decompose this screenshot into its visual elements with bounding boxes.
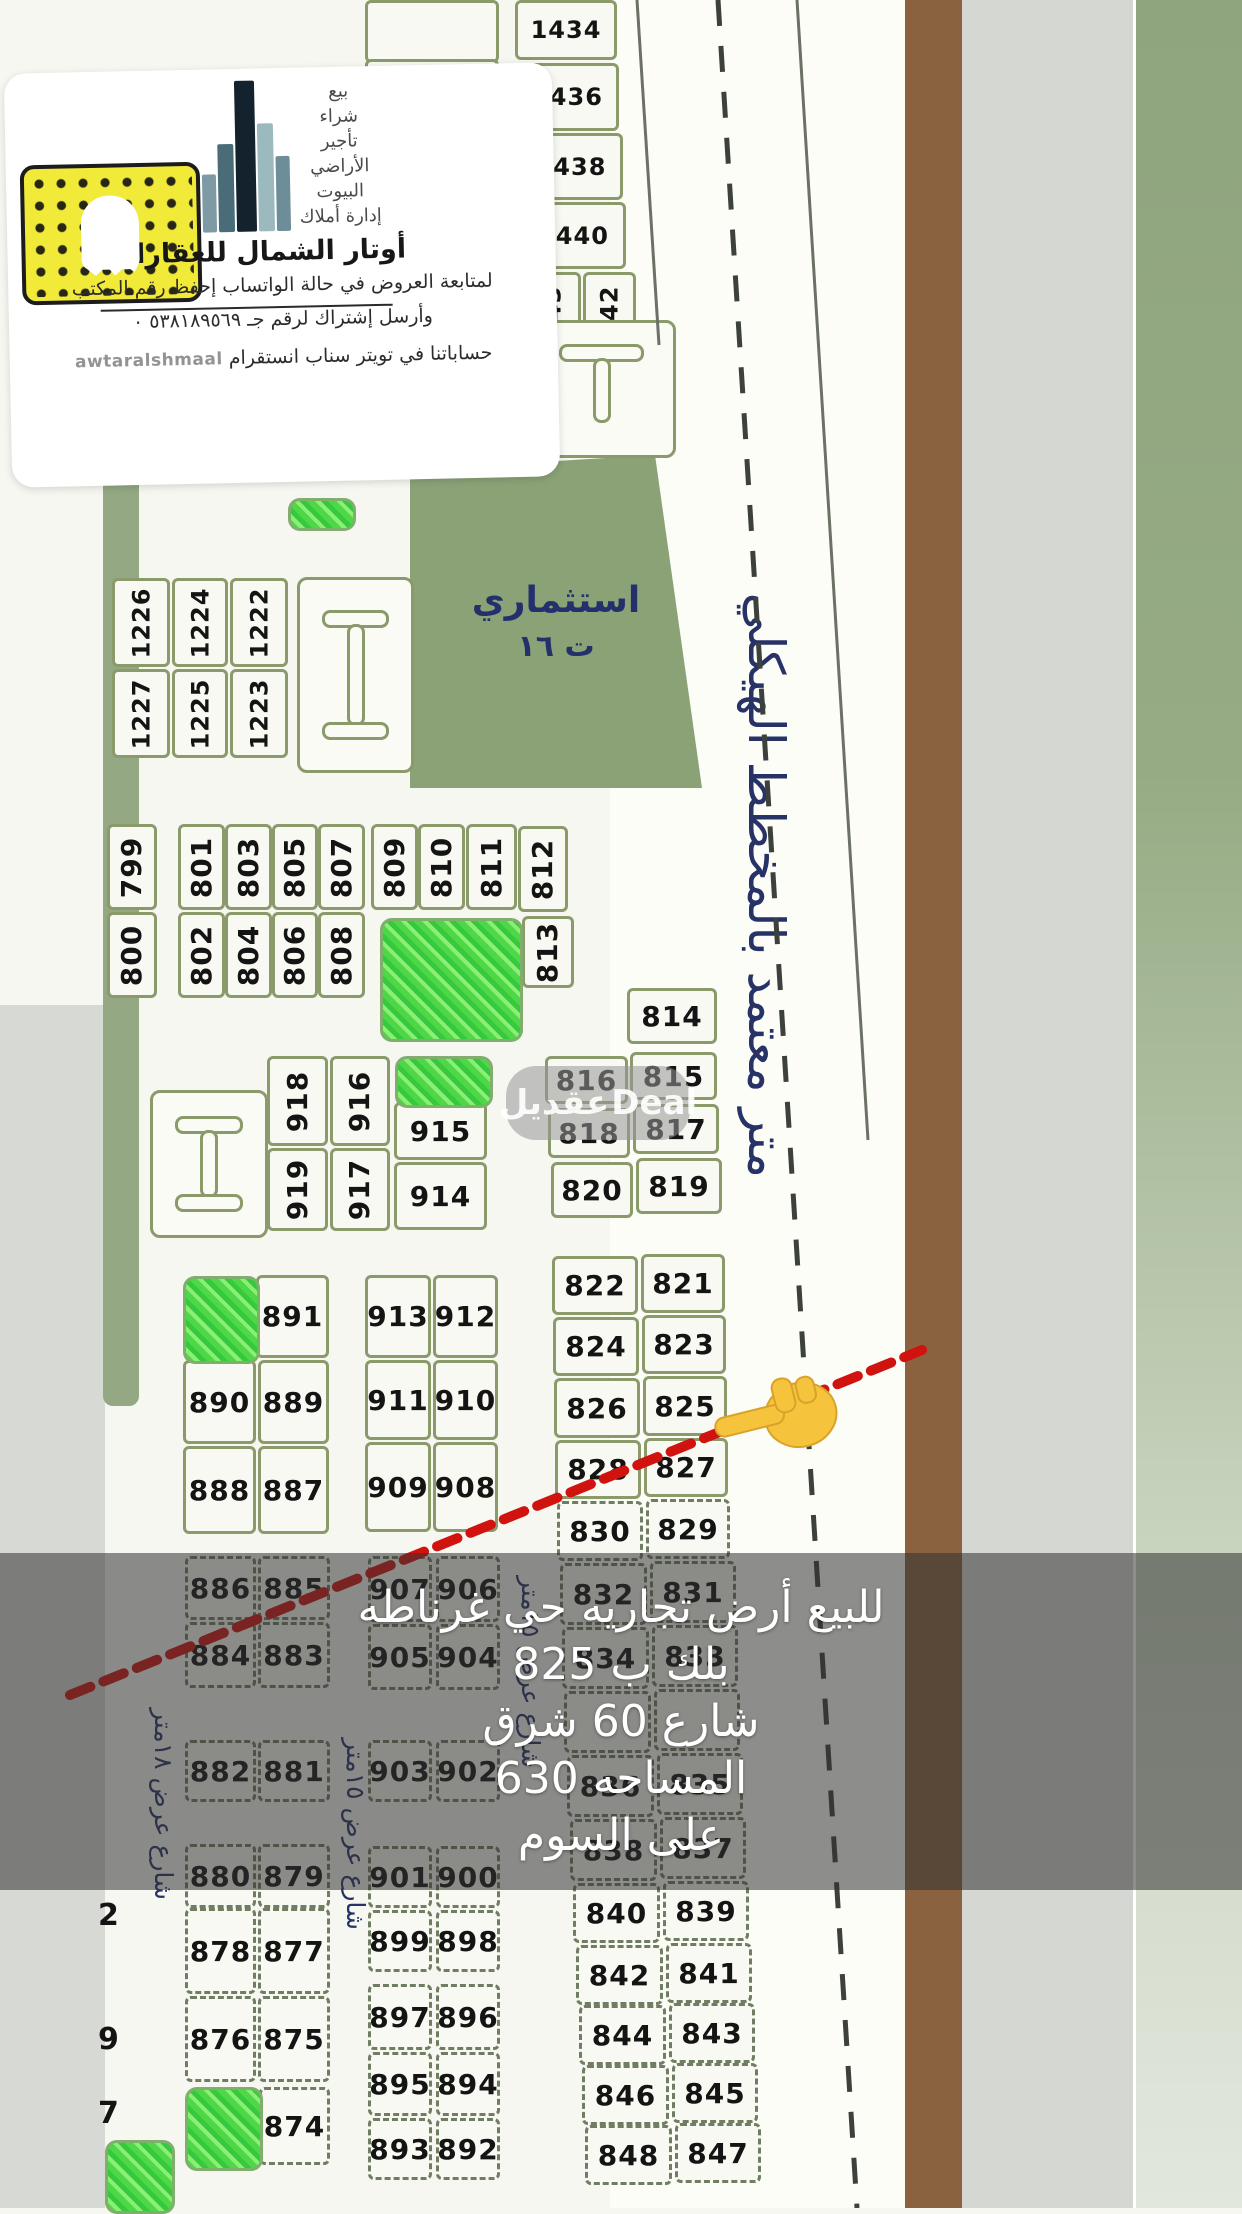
plot-1434: 1434	[515, 0, 617, 60]
investment-parcel: استثماري ت ١٦	[410, 455, 702, 788]
plot-1226: 1226	[112, 578, 170, 667]
plot-811: 811	[466, 824, 517, 910]
plot-number: 1225	[186, 678, 214, 749]
plot-893: 893	[368, 2118, 432, 2180]
service-item: بيع	[282, 78, 394, 105]
service-item: البيوت	[284, 178, 396, 205]
plot-910: 910	[433, 1360, 498, 1440]
plot-number: 821	[652, 1267, 713, 1300]
plot-919: 919	[267, 1148, 328, 1231]
park-green-area	[185, 2087, 263, 2171]
plot-number: 908	[435, 1471, 496, 1504]
plot-808: 808	[318, 912, 365, 998]
plot-number: 823	[653, 1328, 714, 1361]
plot-number: 822	[564, 1269, 625, 1302]
plot-820: 820	[551, 1162, 633, 1218]
investment-label: استثماري	[472, 580, 641, 621]
plot-878: 878	[185, 1908, 256, 1994]
plot-number: 914	[410, 1180, 471, 1213]
plot-number: 820	[561, 1174, 622, 1207]
partial-plot-number: 7	[98, 2096, 119, 2131]
plot-number: 917	[344, 1159, 377, 1220]
plot-number: 916	[344, 1070, 377, 1131]
plot-number: 894	[437, 2068, 498, 2101]
mosque-utility-block	[150, 1090, 268, 1238]
plot-908: 908	[433, 1442, 498, 1532]
plot-number: 819	[648, 1170, 709, 1203]
plot-number: 910	[435, 1384, 496, 1417]
plot-799: 799	[107, 824, 157, 910]
plot-829: 829	[646, 1499, 730, 1559]
block-shape	[175, 1194, 242, 1212]
plot-number: 896	[437, 2001, 498, 2034]
plot-813: 813	[522, 916, 574, 988]
plot-1224: 1224	[172, 578, 228, 667]
plot-number: 1222	[245, 587, 273, 658]
plot-842: 842	[576, 1945, 663, 2005]
plot-916: 916	[330, 1056, 390, 1146]
watermark-badge: عقديل Deal	[506, 1066, 690, 1140]
park-green-area	[105, 2140, 175, 2214]
socials-text: حساباتنا في تويتر سناب انستقرام	[228, 342, 492, 370]
service-item: شراء	[282, 103, 394, 130]
plot-number: 804	[232, 924, 265, 985]
plot-822: 822	[552, 1256, 638, 1315]
plot-917: 917	[330, 1148, 390, 1231]
plot-1225: 1225	[172, 669, 228, 758]
plot-887: 887	[258, 1446, 329, 1534]
plot-number: 842	[589, 1959, 650, 1992]
road-name-label: متر معتمد بالمخطط الهيكلي	[743, 28, 795, 1178]
plot-number: 897	[369, 2001, 430, 2034]
plot-875: 875	[258, 1996, 330, 2082]
plot-848: 848	[585, 2125, 672, 2185]
plot-number: 899	[369, 1925, 430, 1958]
ad-line-4: المساحه 630	[495, 1753, 748, 1804]
park-green-area	[380, 918, 523, 1042]
plot-814: 814	[627, 988, 717, 1044]
plot-number: 812	[527, 838, 560, 899]
plot-800: 800	[107, 912, 157, 998]
plot-844: 844	[579, 2005, 666, 2065]
plot-number: 913	[367, 1300, 428, 1333]
plot-number: 802	[185, 924, 218, 985]
plot-number: 911	[367, 1384, 428, 1417]
screenshot-root: { "logo_card": { "services": ["بيع","شرا…	[0, 0, 1242, 2208]
plot-number: 1434	[531, 16, 602, 44]
plot-number: 803	[232, 836, 265, 897]
block-shape	[593, 358, 611, 423]
park-green-area	[183, 1276, 260, 1364]
plot-number: 808	[325, 924, 358, 985]
plot-899: 899	[368, 1910, 432, 1972]
services-list: بيع شراء تأجير الأراضي البيوت إدارة أملا…	[282, 78, 397, 230]
plot-number: 826	[566, 1392, 627, 1425]
plot-918: 918	[267, 1056, 328, 1146]
plot-821: 821	[641, 1254, 725, 1313]
plot-number: 893	[369, 2133, 430, 2166]
plot-846: 846	[582, 2065, 669, 2125]
plot-number: 1224	[186, 587, 214, 658]
service-item: الأراضي	[283, 153, 395, 180]
plot-number: 1223	[245, 678, 273, 749]
plot-number: 830	[569, 1515, 630, 1548]
plot-806: 806	[272, 912, 318, 998]
service-item: إدارة أملاك	[285, 203, 397, 230]
plot-805: 805	[272, 824, 318, 910]
plot-number: 875	[263, 2023, 324, 2056]
plot-number: 810	[425, 836, 458, 897]
plot-804: 804	[225, 912, 272, 998]
plot-913: 913	[365, 1275, 431, 1358]
plot-830: 830	[557, 1501, 643, 1561]
plot-number: 874	[264, 2110, 325, 2143]
plot-1222: 1222	[230, 578, 288, 667]
plot-number: 909	[367, 1471, 428, 1504]
plot-1223: 1223	[230, 669, 288, 758]
ad-line-1: للبيع أرض تجاريه حي غرناطه	[357, 1582, 884, 1633]
plot-number: 844	[592, 2019, 653, 2052]
plot-807: 807	[318, 824, 365, 910]
plot-847: 847	[675, 2123, 761, 2183]
plot-826: 826	[554, 1378, 640, 1438]
plot-number: 912	[435, 1300, 496, 1333]
plot-number: 890	[189, 1386, 250, 1419]
unlabeled-plot	[365, 0, 499, 63]
agency-logo-card: بيع شراء تأجير الأراضي البيوت إدارة أملا…	[4, 62, 561, 487]
building-icon	[234, 81, 257, 232]
plot-874: 874	[259, 2087, 330, 2165]
plot-812: 812	[518, 826, 568, 912]
plot-819: 819	[636, 1158, 722, 1214]
building-icon	[202, 174, 217, 232]
plot-809: 809	[371, 824, 418, 910]
plot-841: 841	[666, 1943, 752, 2003]
plot-number: 841	[678, 1957, 739, 1990]
plot-803: 803	[225, 824, 272, 910]
plot-845: 845	[672, 2063, 758, 2123]
block-shape	[347, 624, 365, 725]
mosque-utility-block	[297, 577, 414, 773]
plot-number: 807	[325, 836, 358, 897]
plot-891: 891	[256, 1275, 329, 1358]
plot-number: 891	[262, 1300, 323, 1333]
plot-number: 877	[263, 1935, 324, 1968]
plot-number: 878	[190, 1935, 251, 1968]
block-shape	[322, 722, 389, 740]
plot-number: 839	[675, 1895, 736, 1928]
ad-line-2: بلك ب 825	[512, 1639, 729, 1690]
plot-number: 805	[279, 836, 312, 897]
plot-number: 799	[116, 836, 149, 897]
plot-915: 915	[394, 1102, 487, 1160]
plot-911: 911	[365, 1360, 431, 1440]
social-handle: awtaralshmaal	[75, 349, 223, 372]
plot-number: 843	[681, 2017, 742, 2050]
plot-877: 877	[258, 1908, 330, 1994]
plot-824: 824	[553, 1317, 639, 1376]
plot-number: 1227	[127, 678, 155, 749]
plot-number: 827	[655, 1451, 716, 1484]
plot-914: 914	[394, 1162, 487, 1230]
watermark-latin: Deal	[611, 1083, 697, 1123]
plot-number: 846	[595, 2079, 656, 2112]
plot-number: 887	[263, 1474, 324, 1507]
plot-894: 894	[436, 2052, 500, 2116]
watermark-arabic: عقديل	[499, 1083, 609, 1123]
plot-897: 897	[368, 1984, 432, 2050]
ad-line-3: شارع 60 شرق	[482, 1696, 759, 1747]
plot-number: 814	[641, 1000, 702, 1033]
plot-number: 829	[657, 1513, 718, 1546]
building-icon	[217, 144, 235, 232]
partial-plot-number: 2	[98, 1898, 119, 1933]
service-item: تأجير	[283, 128, 395, 155]
ad-line-5: على السوم	[518, 1810, 724, 1861]
snapchat-ghost-icon	[80, 195, 140, 270]
plot-889: 889	[258, 1360, 329, 1444]
plot-898: 898	[436, 1910, 500, 1972]
plot-827: 827	[644, 1438, 728, 1497]
plot-number: 824	[565, 1330, 626, 1363]
plot-number: 888	[189, 1474, 250, 1507]
plot-912: 912	[433, 1275, 498, 1358]
plot-number: 876	[190, 2023, 251, 2056]
building-icon	[257, 123, 275, 231]
plot-number: 1226	[127, 587, 155, 658]
plot-number: 918	[281, 1070, 314, 1131]
plot-823: 823	[642, 1315, 726, 1374]
plot-909: 909	[365, 1442, 431, 1532]
plot-840: 840	[573, 1883, 660, 1943]
plot-number: 809	[378, 836, 411, 897]
plot-number: 811	[475, 836, 508, 897]
plot-number: 892	[437, 2133, 498, 2166]
plot-1227: 1227	[112, 669, 170, 758]
plot-895: 895	[368, 2052, 432, 2116]
plot-896: 896	[436, 1984, 500, 2050]
plot-802: 802	[178, 912, 225, 998]
plot-888: 888	[183, 1446, 256, 1534]
plot-number: 813	[532, 921, 565, 982]
park-green-area	[288, 498, 356, 531]
plot-number: 845	[684, 2077, 745, 2110]
investment-sub-label: ت ١٦	[517, 629, 594, 664]
park-green-area	[395, 1056, 493, 1108]
plot-number: 800	[116, 924, 149, 985]
plot-number: 895	[369, 2068, 430, 2101]
plot-876: 876	[185, 1996, 256, 2082]
plot-number: 847	[687, 2137, 748, 2170]
plot-number: 806	[279, 924, 312, 985]
plot-number: 828	[567, 1453, 628, 1486]
plot-890: 890	[183, 1360, 256, 1444]
plot-839: 839	[663, 1881, 749, 1941]
plot-number: 801	[185, 836, 218, 897]
plot-892: 892	[436, 2118, 500, 2180]
plot-843: 843	[669, 2003, 755, 2063]
block-shape	[200, 1130, 218, 1199]
plot-number: 915	[410, 1115, 471, 1148]
plot-number: 898	[437, 1925, 498, 1958]
card-phone-line: وأرسل إشتراك لرقم جـ ٥٣٨١٨٩٥٦٩ ٠	[21, 303, 545, 336]
plot-number: 840	[586, 1897, 647, 1930]
partial-plot-number: 9	[98, 2022, 119, 2057]
plot-number: 848	[598, 2139, 659, 2172]
ad-overlay: للبيع أرض تجاريه حي غرناطه بلك ب 825 شار…	[0, 1553, 1242, 1890]
plot-number: 889	[263, 1386, 324, 1419]
plot-number: 919	[281, 1159, 314, 1220]
card-socials-line: حساباتنا في تويتر سناب انستقرام awtarals…	[22, 340, 546, 373]
plot-810: 810	[418, 824, 465, 910]
plot-828: 828	[555, 1440, 641, 1499]
plot-801: 801	[178, 824, 225, 910]
